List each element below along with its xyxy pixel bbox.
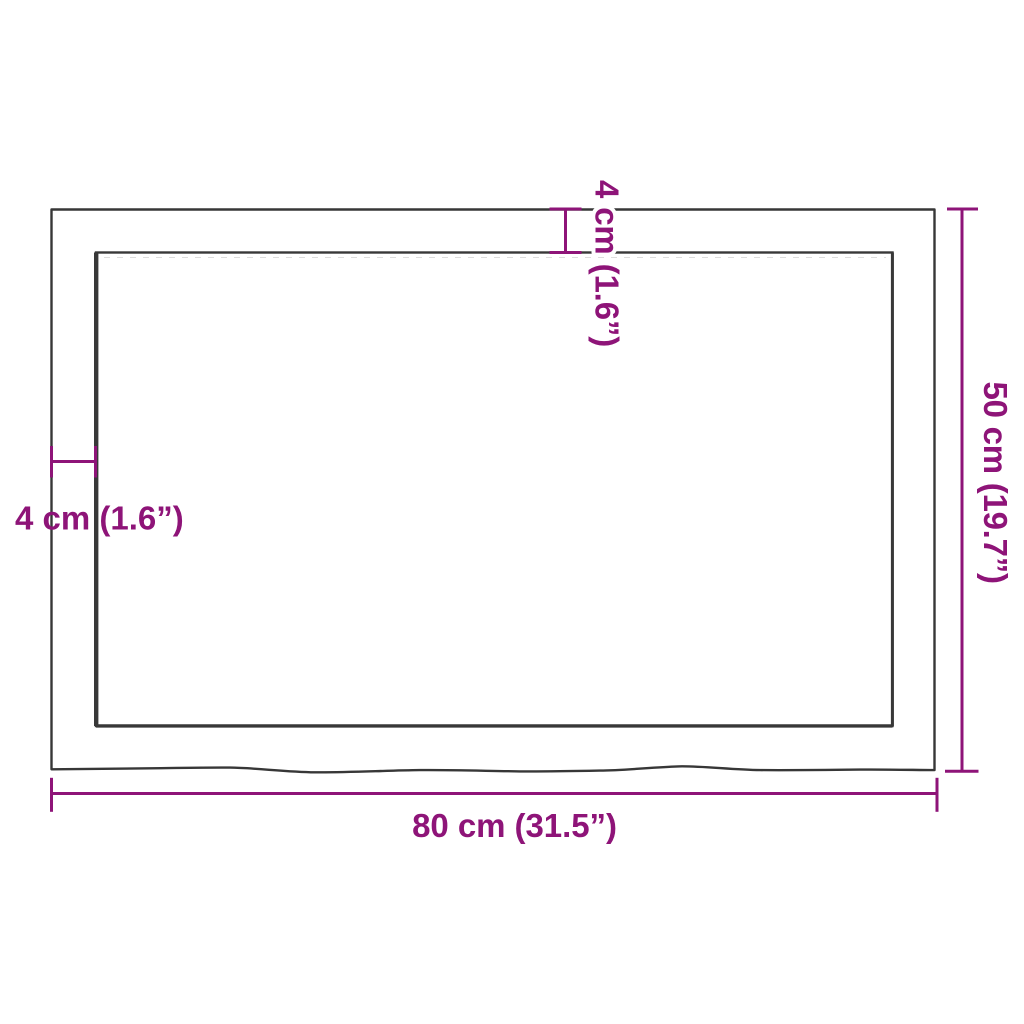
svg-text:80 cm (31.5”): 80 cm (31.5”)	[412, 807, 617, 844]
svg-text:4 cm (1.6”): 4 cm (1.6”)	[15, 500, 184, 537]
svg-text:4 cm (1.6”): 4 cm (1.6”)	[589, 180, 626, 347]
svg-text:50 cm (19.7”): 50 cm (19.7”)	[977, 382, 1014, 584]
